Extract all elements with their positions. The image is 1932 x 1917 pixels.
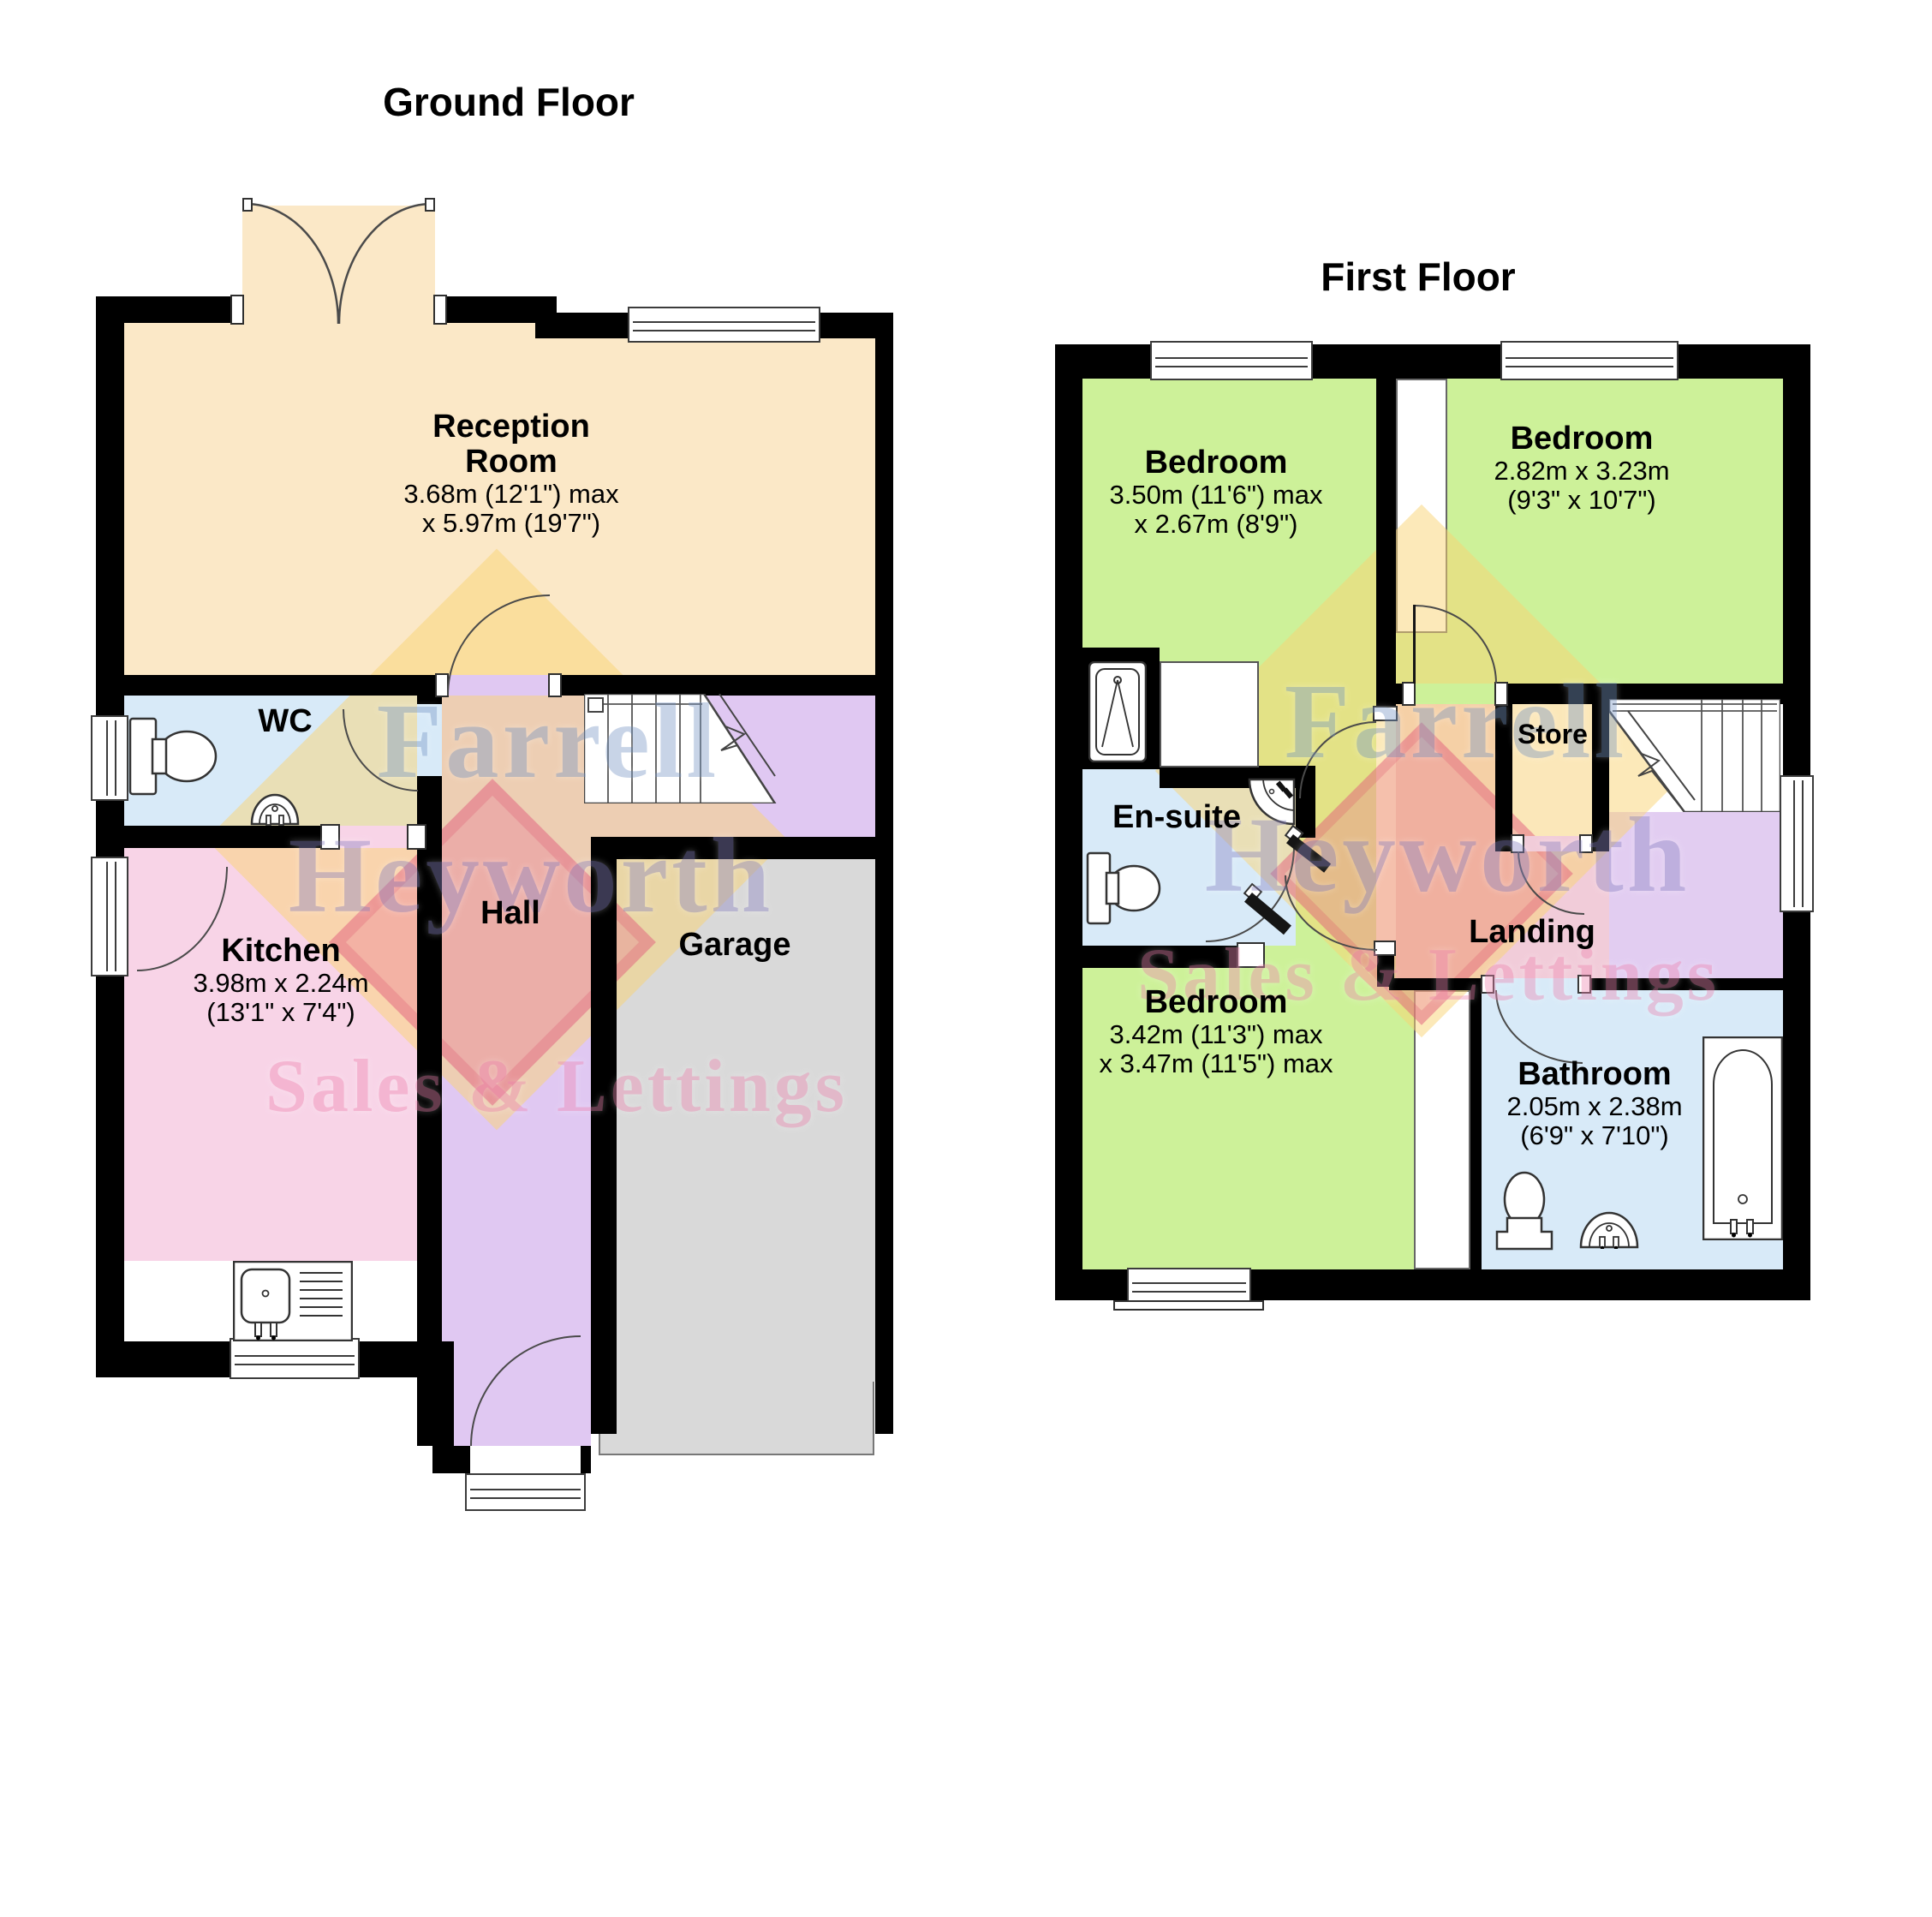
watermark-text: Heyworth bbox=[1205, 795, 1690, 917]
room-label-bedroom-top-right: Bedroom 2.82m x 3.23m (9'3" x 10'7") bbox=[1494, 421, 1669, 515]
watermark-text: Sales & Lettings bbox=[265, 1043, 848, 1130]
window bbox=[1150, 341, 1313, 380]
window bbox=[91, 715, 128, 801]
wall bbox=[1470, 990, 1482, 1269]
room-label-hall: Hall bbox=[480, 896, 540, 931]
wall bbox=[557, 313, 628, 338]
window-sill bbox=[1113, 1300, 1264, 1311]
room-label-bedroom-top-left: Bedroom 3.50m (11'6") max x 2.67m (8'9") bbox=[1110, 445, 1323, 539]
floor-title-first: First Floor bbox=[1321, 254, 1515, 300]
toilet-icon bbox=[1494, 1170, 1555, 1251]
window bbox=[1780, 775, 1814, 912]
sink-icon bbox=[1578, 1199, 1640, 1249]
room-label-reception: Reception Room 3.68m (12'1") max x 5.97m… bbox=[403, 409, 618, 538]
window bbox=[91, 857, 128, 976]
door-jamb bbox=[433, 295, 447, 325]
room-label-wc: WC bbox=[258, 704, 312, 739]
garage-apron bbox=[599, 1377, 874, 1455]
wall bbox=[535, 296, 557, 338]
shower-icon bbox=[1088, 661, 1147, 762]
floorplan-canvas: Ground Floor bbox=[0, 0, 1932, 1917]
french-doors bbox=[242, 195, 435, 325]
room-label-garage: Garage bbox=[679, 928, 791, 963]
room-label-bathroom: Bathroom 2.05m x 2.38m (6'9" x 7'10") bbox=[1506, 1057, 1682, 1150]
bathtub-icon bbox=[1702, 1036, 1783, 1240]
airing-cupboard bbox=[1160, 661, 1259, 767]
toilet-icon bbox=[1086, 851, 1165, 925]
room-label-ensuite: En-suite bbox=[1112, 800, 1241, 835]
wall bbox=[1055, 344, 1082, 1300]
room-label-landing: Landing bbox=[1469, 915, 1595, 950]
window bbox=[1127, 1268, 1251, 1304]
room-label-bedroom-bottom: Bedroom 3.42m (11'3") max x 3.47m (11'5"… bbox=[1099, 985, 1333, 1078]
front-door-threshold bbox=[465, 1473, 586, 1511]
window bbox=[628, 307, 820, 343]
window bbox=[1500, 341, 1679, 380]
kitchen-sink-icon bbox=[233, 1261, 353, 1341]
window bbox=[230, 1338, 360, 1379]
wall bbox=[435, 296, 535, 323]
wall bbox=[820, 313, 875, 338]
watermark-text: Farrell bbox=[377, 681, 720, 803]
toilet-icon bbox=[128, 715, 231, 797]
floor-title-ground: Ground Floor bbox=[383, 79, 635, 125]
wall bbox=[875, 313, 893, 1434]
front-door-opening bbox=[470, 1446, 581, 1473]
room-label-kitchen: Kitchen 3.98m x 2.24m (13'1" x 7'4") bbox=[193, 934, 368, 1027]
room-label-store: Store bbox=[1518, 720, 1588, 749]
